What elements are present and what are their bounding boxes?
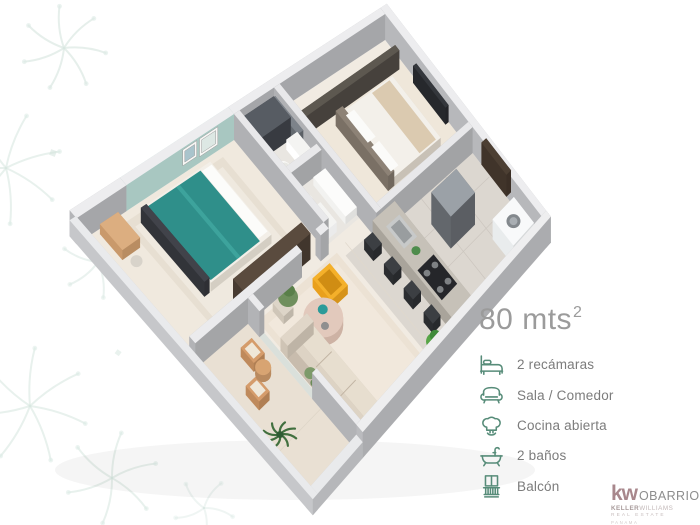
feature-label: Cocina abierta	[517, 418, 607, 433]
feature-row-bedrooms: 2 recámaras	[477, 350, 594, 378]
logo-brand-line: KELLERWILLIAMS	[611, 506, 699, 512]
listing-graphic: 80 mts2 2 recámaras Sala / Comedor Cocin…	[0, 0, 700, 525]
feature-row-living: Sala / Comedor	[477, 381, 614, 409]
logo-tagline: REAL ESTATE	[611, 514, 699, 519]
feature-row-bathrooms: 2 baños	[477, 441, 566, 469]
feature-row-kitchen: Cocina abierta	[477, 411, 607, 439]
balcony-icon	[477, 472, 506, 500]
bathtub-icon	[477, 441, 506, 469]
kw-logo-mark: kw	[611, 483, 637, 504]
feature-label: Sala / Comedor	[517, 388, 614, 403]
kw-obarrio-logo: kw OBARRIO KELLERWILLIAMS REAL ESTATE PA…	[611, 483, 699, 525]
sofa-icon	[477, 381, 506, 409]
feature-label: 2 baños	[517, 448, 566, 463]
logo-office-name: OBARRIO	[639, 490, 699, 503]
bed-icon	[477, 350, 506, 378]
area-superscript: 2	[573, 304, 582, 321]
chef-hat-icon	[477, 411, 506, 439]
feature-label: Balcón	[517, 479, 559, 494]
counter-plant	[411, 246, 420, 255]
balcony-table	[255, 359, 271, 382]
area-label: 80 mts2	[479, 303, 581, 337]
feature-label: 2 recámaras	[517, 357, 594, 372]
desk-chair	[131, 255, 143, 267]
feature-row-balcony: Balcón	[477, 472, 559, 500]
logo-region: PANAMA	[611, 521, 699, 525]
floor-plan-3d-render	[0, 0, 700, 525]
